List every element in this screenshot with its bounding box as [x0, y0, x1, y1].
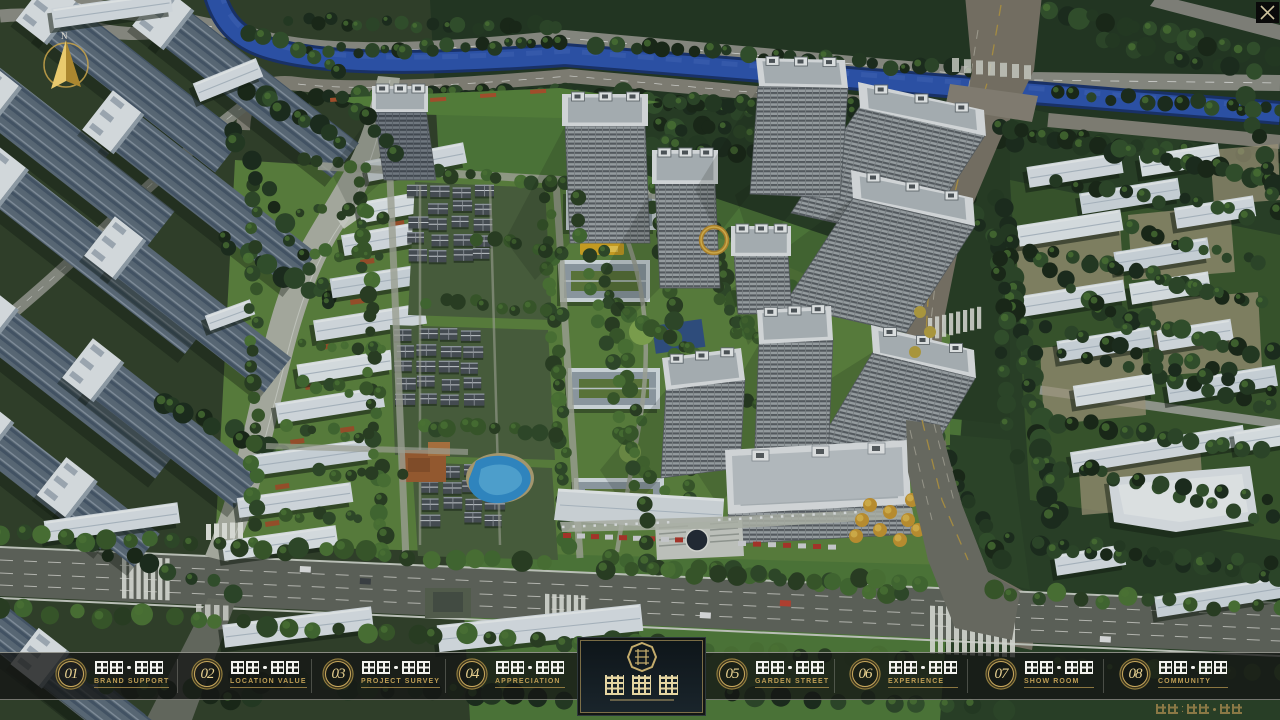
- svg-text:N: N: [61, 31, 68, 41]
